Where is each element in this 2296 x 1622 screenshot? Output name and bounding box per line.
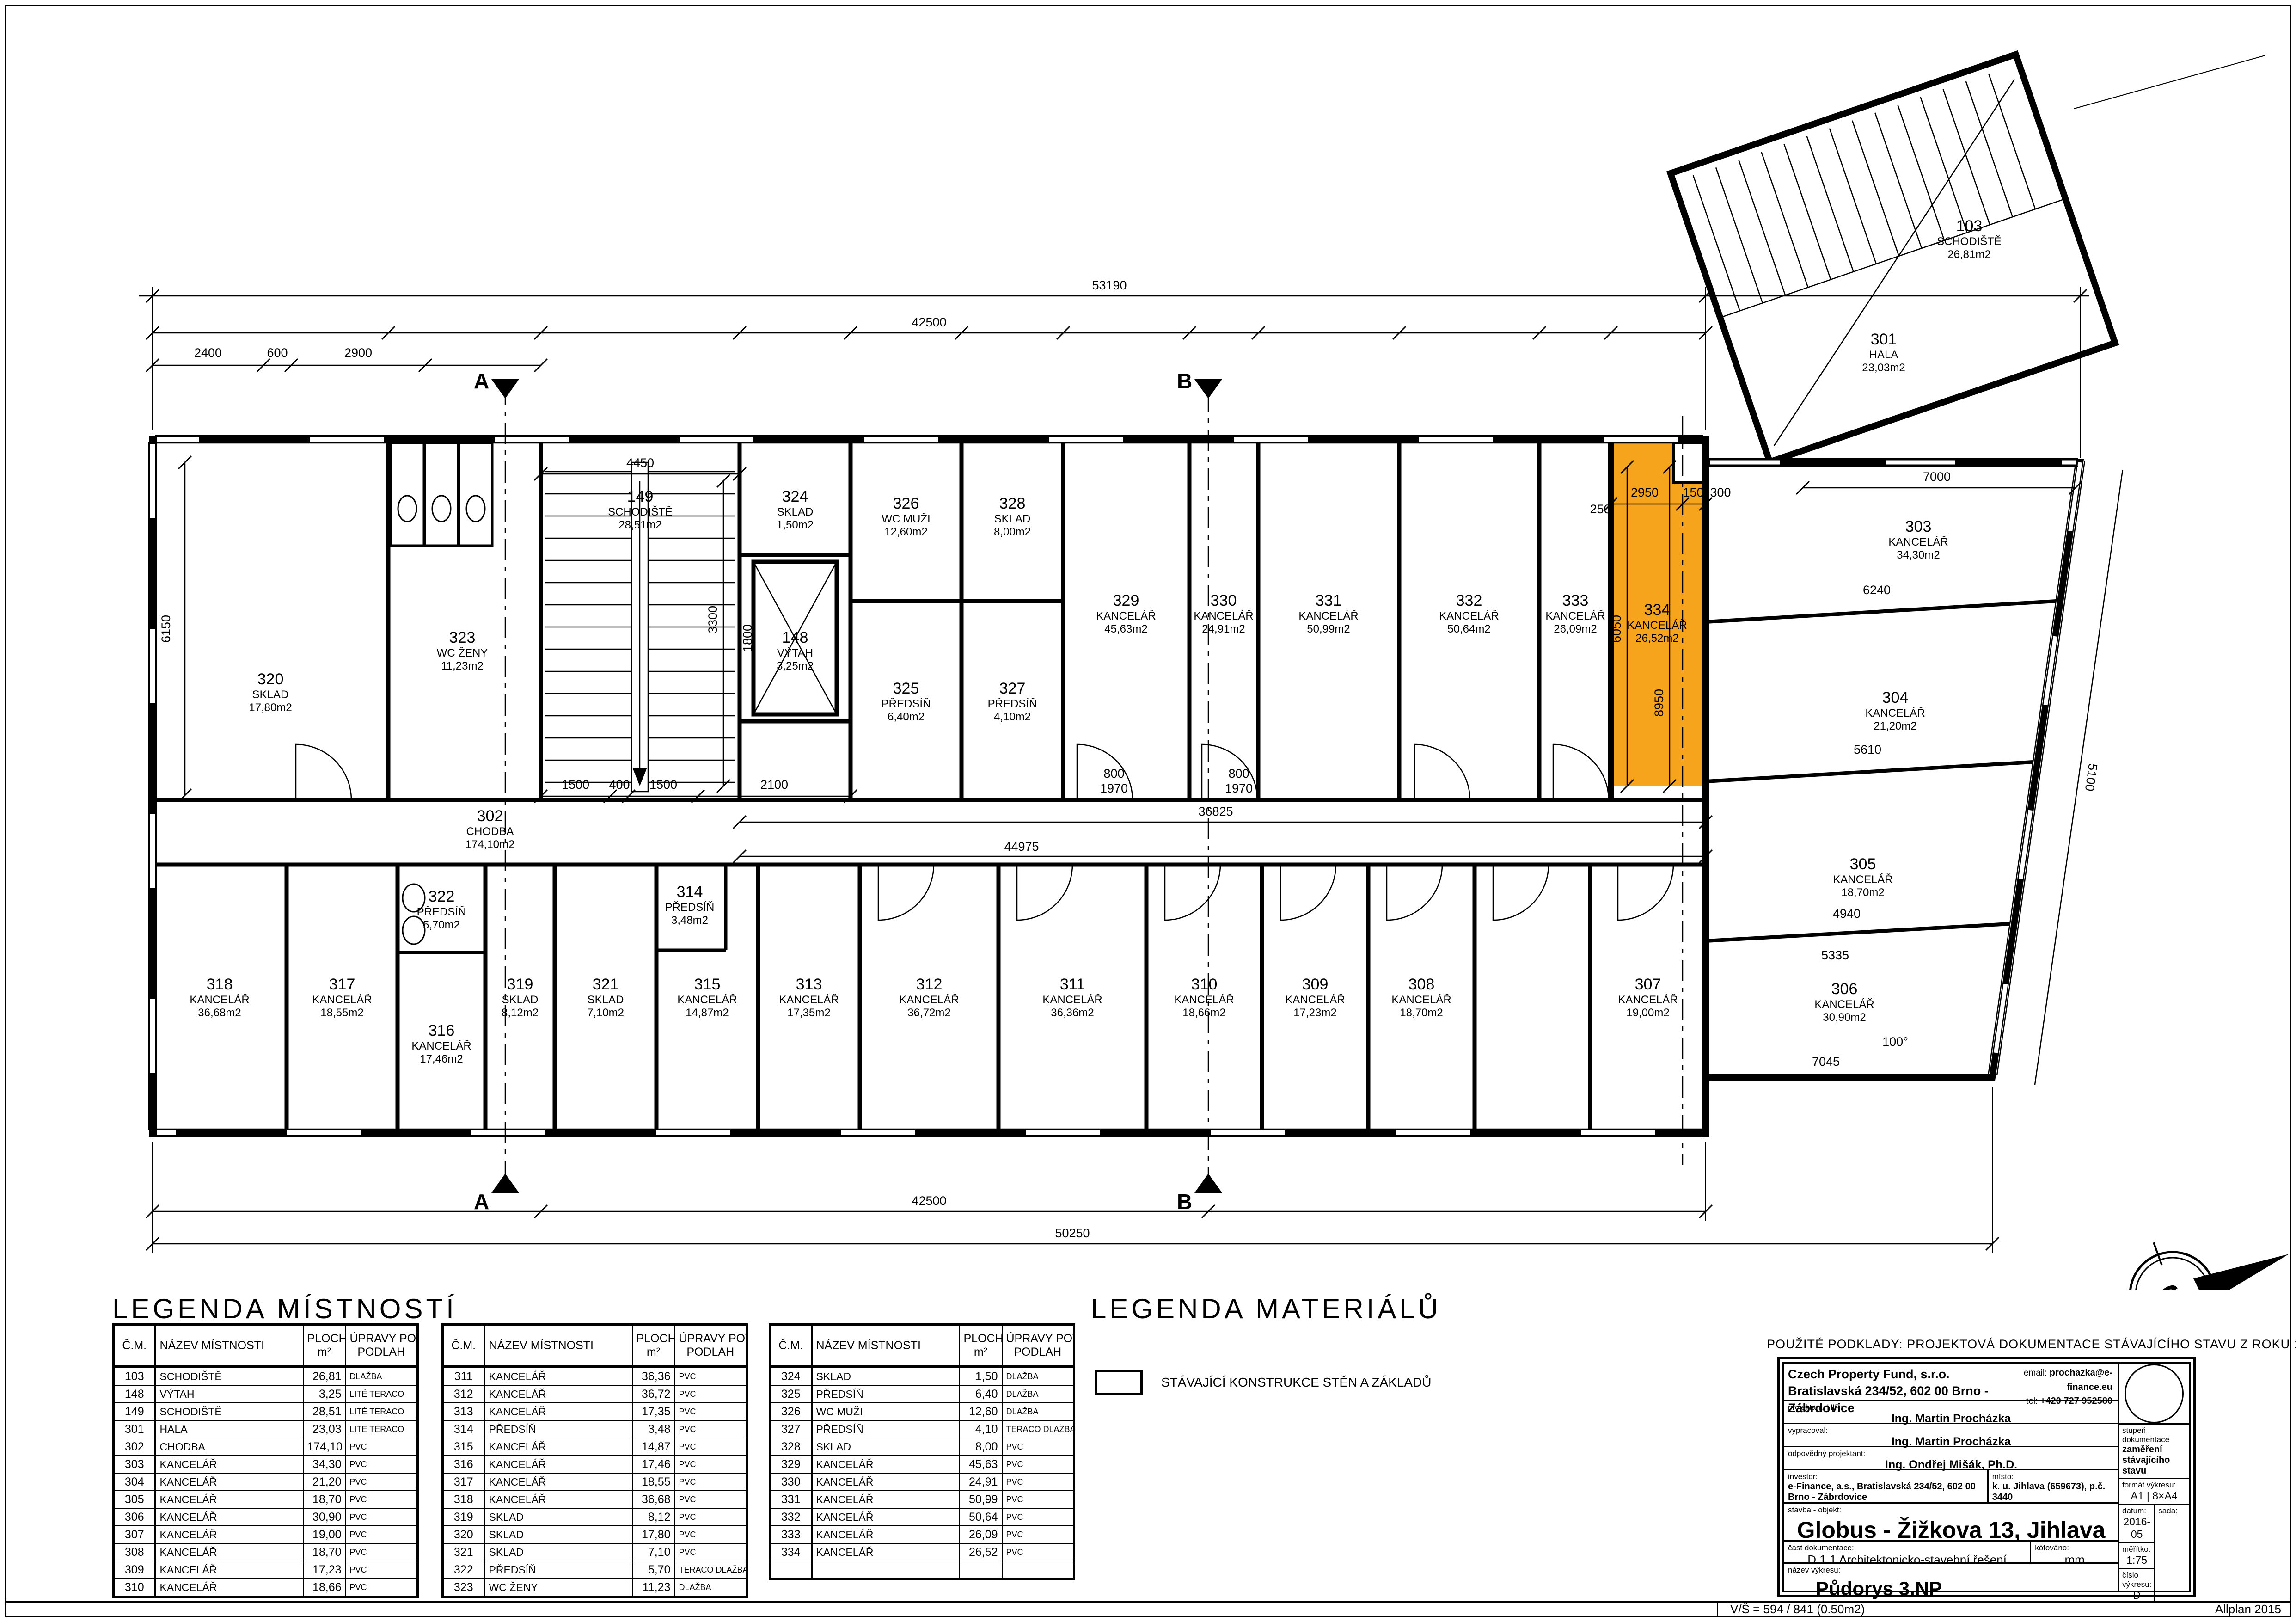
datum-value: 2016-05 xyxy=(2122,1516,2151,1541)
legend-row: 312KANCELÁŘ36,72PVC xyxy=(443,1385,747,1403)
legend-cell: KANCELÁŘ xyxy=(812,1543,960,1561)
cast-row: část dokumentace: D.1.1 Architektonicko-… xyxy=(1784,1542,2118,1564)
legend-row: 332KANCELÁŘ50,64PVC xyxy=(770,1508,1074,1526)
legend-cell: SKLAD xyxy=(484,1543,632,1561)
legend-row: 149SCHODIŠTĚ28,51LITÉ TERACO xyxy=(114,1403,418,1420)
legend-cell: LITÉ TERACO xyxy=(346,1420,418,1438)
legend-cell: 18,70 xyxy=(303,1491,346,1508)
legend-cell: PVC xyxy=(675,1385,747,1403)
legend-cell: 12,60 xyxy=(960,1403,1002,1420)
col-header-name: NÁZEV MÍSTNOSTI xyxy=(812,1325,960,1367)
legend-cell: 322 xyxy=(443,1561,484,1579)
section-lines xyxy=(505,384,1683,1188)
floor-plan: A A B B xyxy=(0,0,2296,1290)
legend-cell: 324 xyxy=(770,1367,812,1385)
legend-cell: 24,91 xyxy=(960,1473,1002,1491)
legend-row xyxy=(770,1561,1074,1579)
dim-label: 800 xyxy=(1103,767,1124,780)
legend-cell: PVC xyxy=(346,1579,418,1597)
legend-cell xyxy=(770,1561,812,1579)
legend-cell: PVC xyxy=(1002,1491,1074,1508)
legend-cell: KANCELÁŘ xyxy=(484,1491,632,1508)
legend-row: 323WC ŽENY11,23DLAŽBA xyxy=(443,1579,747,1597)
legend-row: 333KANCELÁŘ26,09PVC xyxy=(770,1526,1074,1543)
legend-cell: PVC xyxy=(675,1367,747,1385)
dim-label: 400 xyxy=(609,778,630,792)
legend-cell: 315 xyxy=(443,1438,484,1456)
odpovedny-row: odpovědný projektant: Ing. Ondřej Mišák,… xyxy=(1784,1447,2118,1470)
legend-cell: KANCELÁŘ xyxy=(155,1473,303,1491)
room-label: 309KANCELÁŘ17,23m2 xyxy=(1285,976,1345,1019)
legend-cell: PVC xyxy=(1002,1438,1074,1456)
legend-cell: PVC xyxy=(675,1491,747,1508)
dim-label: 1500 xyxy=(562,778,589,792)
stupen-row: stupeň dokumentace zaměření stávajícího … xyxy=(2119,1425,2189,1479)
legend-cell: 50,99 xyxy=(960,1491,1002,1508)
legend-cell: 14,87 xyxy=(632,1438,675,1456)
vypracoval-value: Ing. Martin Procházka xyxy=(1788,1435,2114,1449)
legend-cell: PVC xyxy=(346,1543,418,1561)
room-label: 304KANCELÁŘ21,20m2 xyxy=(1865,689,1925,732)
legend-row: 326WC MUŽI12,60DLAŽBA xyxy=(770,1403,1074,1420)
stamp-area xyxy=(2119,1364,2189,1425)
legend-cell: 313 xyxy=(443,1403,484,1420)
vypracoval-row: vypracoval: Ing. Martin Procházka xyxy=(1784,1424,2118,1447)
room-label: 305KANCELÁŘ18,70m2 xyxy=(1833,855,1892,899)
dim-label: 42500 xyxy=(912,315,946,329)
legend-row: 305KANCELÁŘ18,70PVC xyxy=(114,1491,418,1508)
legend-cell: 328 xyxy=(770,1438,812,1456)
legend-cell: 36,36 xyxy=(632,1367,675,1385)
footer-scale-note: V/Š = 594 / 841 (0.50m2) xyxy=(1718,1602,2215,1616)
legend-cell: 23,03 xyxy=(303,1420,346,1438)
legend-cell xyxy=(812,1561,960,1579)
legend-cell: 330 xyxy=(770,1473,812,1491)
dim-label: 50250 xyxy=(1055,1226,1090,1240)
legend-cell: 26,52 xyxy=(960,1543,1002,1561)
legend-cell: 17,23 xyxy=(303,1561,346,1579)
legend-cell: KANCELÁŘ xyxy=(812,1491,960,1508)
east-wing xyxy=(1706,459,2085,1079)
dim-label: 250 xyxy=(1590,502,1610,516)
legend-cell: 36,68 xyxy=(632,1491,675,1508)
projektant-value: Ing. Martin Procházka xyxy=(1788,1412,2114,1425)
legend-cell: SKLAD xyxy=(484,1508,632,1526)
legend-cell: 333 xyxy=(770,1526,812,1543)
legend-cell: 318 xyxy=(443,1491,484,1508)
odpovedny-value: Ing. Ondřej Mišák, Ph.D. xyxy=(1788,1458,2114,1472)
legend-row: 328SKLAD8,00PVC xyxy=(770,1438,1074,1456)
legend-cell: 1,50 xyxy=(960,1367,1002,1385)
legend-row: 334KANCELÁŘ26,52PVC xyxy=(770,1543,1074,1561)
legend-row: 320SKLAD17,80PVC xyxy=(443,1526,747,1543)
legend-cell: DLAŽBA xyxy=(1002,1403,1074,1420)
room-label: 330KANCELÁŘ24,91m2 xyxy=(1194,592,1253,635)
legend-cell: SCHODIŠTĚ xyxy=(155,1367,303,1385)
email-value: prochazka@e-finance.eu xyxy=(2050,1368,2112,1392)
legend-cell: PŘEDSÍŇ xyxy=(812,1385,960,1403)
legend-cell: 334 xyxy=(770,1543,812,1561)
legend-cell: PVC xyxy=(675,1508,747,1526)
legend-cell: WC MUŽI xyxy=(812,1403,960,1420)
room-label: 316KANCELÁŘ17,46m2 xyxy=(411,1022,471,1065)
legend-cell: PVC xyxy=(346,1561,418,1579)
legend-rooms-table-1: Č.M. NÁZEV MÍSTNOSTI PLOCHAm² ÚPRAVY POV… xyxy=(112,1323,419,1598)
legend-cell: LITÉ TERACO xyxy=(346,1385,418,1403)
legend-cell: SCHODIŠTĚ xyxy=(155,1403,303,1420)
room-label: 325PŘEDSÍŇ6,40m2 xyxy=(882,680,931,723)
dim-label: 6240 xyxy=(1863,583,1891,597)
material-label: STÁVAJÍCÍ KONSTRUKCE STĚN A ZÁKLADŮ xyxy=(1161,1375,1432,1390)
room-label: 301HALA23,03m2 xyxy=(1862,331,1905,374)
legend-cell: 310 xyxy=(114,1579,155,1597)
legend-cell: 311 xyxy=(443,1367,484,1385)
dim-label: 2400 xyxy=(194,346,222,360)
legend-cell: PVC xyxy=(346,1508,418,1526)
room-label: 326WC MUŽI12,60m2 xyxy=(882,495,930,538)
legend-cell: 5,70 xyxy=(632,1561,675,1579)
legend-cell: 36,72 xyxy=(632,1385,675,1403)
legend-cell: KANCELÁŘ xyxy=(812,1508,960,1526)
legend-cell: KANCELÁŘ xyxy=(484,1456,632,1473)
stupen-value: zaměření stávajícího stavu xyxy=(2122,1444,2186,1476)
dim-label: 300 xyxy=(1710,485,1731,499)
col-header-num: Č.M. xyxy=(114,1325,155,1367)
legend-cell: 103 xyxy=(114,1367,155,1385)
section-letter-b-top: B xyxy=(1177,369,1192,393)
room-label: 319SKLAD8,12m2 xyxy=(502,976,539,1019)
investor-value: e-Finance, a.s., Bratislavská 234/52, 60… xyxy=(1788,1481,1984,1503)
legend-row: 325PŘEDSÍŇ6,40DLAŽBA xyxy=(770,1385,1074,1403)
main-building xyxy=(149,436,1706,1137)
room-label: 323WC ŽENY11,23m2 xyxy=(437,629,488,672)
legend-cell: 18,66 xyxy=(303,1579,346,1597)
dim-label: 5335 xyxy=(1821,948,1849,962)
stamp-circle-icon xyxy=(2125,1364,2184,1423)
room-label: 318KANCELÁŘ36,68m2 xyxy=(190,976,249,1019)
misto-value: k. u. Jihlava (659673), p.č. 3440 xyxy=(1992,1481,2114,1503)
legend-cell: PVC xyxy=(675,1456,747,1473)
dim-label: 5100 xyxy=(2082,762,2100,792)
legend-cell: PVC xyxy=(346,1526,418,1543)
section-letter-b-bottom: B xyxy=(1177,1190,1192,1214)
legend-cell: 3,25 xyxy=(303,1385,346,1403)
legend-cell: 323 xyxy=(443,1579,484,1597)
dim-label: 7045 xyxy=(1812,1055,1840,1069)
legend-row: 314PŘEDSÍŇ3,48PVC xyxy=(443,1420,747,1438)
legend-cell: KANCELÁŘ xyxy=(812,1473,960,1491)
legend-cell: KANCELÁŘ xyxy=(155,1508,303,1526)
highlighted-room-notch xyxy=(1673,443,1703,482)
legend-cell: 26,09 xyxy=(960,1526,1002,1543)
dimension-labels: 5319042500425005025036825449756150700062… xyxy=(159,278,2100,1240)
legend-row: 316KANCELÁŘ17,46PVC xyxy=(443,1456,747,1473)
room-label: 302CHODBA174,10m2 xyxy=(465,807,515,851)
legend-cell: PVC xyxy=(1002,1473,1074,1491)
legend-cell: 327 xyxy=(770,1420,812,1438)
room-label: 306KANCELÁŘ30,90m2 xyxy=(1814,980,1874,1024)
dim-label: 7000 xyxy=(1923,470,1951,484)
room-label: 329KANCELÁŘ45,63m2 xyxy=(1096,592,1156,635)
legend-cell: WC ŽENY xyxy=(484,1579,632,1597)
dim-label: 3300 xyxy=(706,606,720,633)
extension-line xyxy=(2074,55,2265,109)
dim-label: 2900 xyxy=(344,346,372,360)
dim-label: 800 xyxy=(1228,767,1249,780)
legend-row: 310KANCELÁŘ18,66PVC xyxy=(114,1579,418,1597)
meritko-row: měřítko: 1:75 xyxy=(2119,1543,2154,1569)
section-letter-a-top: A xyxy=(474,369,489,393)
legend-cell: KANCELÁŘ xyxy=(155,1543,303,1561)
room-label: 324SKLAD1,50m2 xyxy=(777,488,814,531)
legend-cell: KANCELÁŘ xyxy=(155,1526,303,1543)
legend-cell: 331 xyxy=(770,1491,812,1508)
legend-cell xyxy=(960,1561,1002,1579)
legend-cell: 21,20 xyxy=(303,1473,346,1491)
legend-cell: KANCELÁŘ xyxy=(484,1367,632,1385)
legend-cell: PŘEDSÍŇ xyxy=(484,1420,632,1438)
room-label: 148VÝTAH3,25m2 xyxy=(777,629,814,672)
legend-materials-item: STÁVAJÍCÍ KONSTRUKCE STĚN A ZÁKLADŮ xyxy=(1095,1370,1432,1395)
legend-cell: 325 xyxy=(770,1385,812,1403)
legend-cell: 303 xyxy=(114,1456,155,1473)
dim-label: 8950 xyxy=(1652,689,1666,717)
legend-row: 307KANCELÁŘ19,00PVC xyxy=(114,1526,418,1543)
legend-cell: KANCELÁŘ xyxy=(155,1456,303,1473)
legend-cell: KANCELÁŘ xyxy=(155,1579,303,1597)
legend-cell: KANCELÁŘ xyxy=(484,1403,632,1420)
dim-label: 53190 xyxy=(1092,278,1127,292)
room-label: 333KANCELÁŘ26,09m2 xyxy=(1545,592,1605,635)
annex-block xyxy=(1671,55,2115,462)
dim-label: 4940 xyxy=(1833,907,1861,921)
room-label: 307KANCELÁŘ19,00m2 xyxy=(1618,976,1678,1019)
room-label: 320SKLAD17,80m2 xyxy=(249,670,292,714)
legend-row: 321SKLAD7,10PVC xyxy=(443,1543,747,1561)
legend-rooms-table-2: Č.M. NÁZEV MÍSTNOSTI PLOCHAm² ÚPRAVY POV… xyxy=(441,1323,748,1598)
legend-row: 324SKLAD1,50DLAŽBA xyxy=(770,1367,1074,1385)
legend-cell: PVC xyxy=(1002,1526,1074,1543)
legend-rooms-title: LEGENDA MÍSTNOSTÍ xyxy=(112,1293,457,1325)
legend-cell: 17,35 xyxy=(632,1403,675,1420)
col-header-floor: ÚPRAVY POVRCHŮPODLAH xyxy=(346,1325,418,1367)
legend-cell: DLAŽBA xyxy=(346,1367,418,1385)
investor-row: investor: e-Finance, a.s., Bratislavská … xyxy=(1784,1470,2118,1504)
legend-cell: KANCELÁŘ xyxy=(812,1456,960,1473)
wc-stalls xyxy=(391,443,492,944)
legend-row: 148VÝTAH3,25LITÉ TERACO xyxy=(114,1385,418,1403)
room-label: 310KANCELÁŘ18,66m2 xyxy=(1174,976,1234,1019)
legend-cell: DLAŽBA xyxy=(675,1579,747,1597)
dim-label: 4450 xyxy=(626,456,654,470)
room-label: 327PŘEDSÍŇ4,10m2 xyxy=(988,680,1037,723)
legend-cell: 309 xyxy=(114,1561,155,1579)
legend-cell: 308 xyxy=(114,1543,155,1561)
legend-cell: 45,63 xyxy=(960,1456,1002,1473)
legend-row: 302CHODBA174,10PVC xyxy=(114,1438,418,1456)
col-header-num: Č.M. xyxy=(770,1325,812,1367)
email-label: email: xyxy=(2024,1368,2047,1378)
legend-cell: KANCELÁŘ xyxy=(155,1491,303,1508)
legend-cell: PŘEDSÍŇ xyxy=(812,1420,960,1438)
legend-row: 331KANCELÁŘ50,99PVC xyxy=(770,1491,1074,1508)
legend-cell: 312 xyxy=(443,1385,484,1403)
legend-cell: PVC xyxy=(675,1473,747,1491)
legend-row: 304KANCELÁŘ21,20PVC xyxy=(114,1473,418,1491)
dim-label: 2950 xyxy=(1631,485,1659,499)
col-header-name: NÁZEV MÍSTNOSTI xyxy=(155,1325,303,1367)
legend-cell: 3,48 xyxy=(632,1420,675,1438)
company-row: Czech Property Fund, s.r.o. Bratislavská… xyxy=(1784,1364,2118,1401)
legend-cell: 8,00 xyxy=(960,1438,1002,1456)
legend-cell: KANCELÁŘ xyxy=(155,1561,303,1579)
dimension-lines xyxy=(139,287,2123,1253)
room-label: 311KANCELÁŘ36,36m2 xyxy=(1042,976,1102,1019)
north-compass-icon: S xyxy=(2130,1242,2289,1290)
footer-bar: V/Š = 594 / 841 (0.50m2) Allplan 2015 xyxy=(5,1601,2291,1617)
meritko-value: 1:75 xyxy=(2122,1554,2151,1567)
legend-cell: 148 xyxy=(114,1385,155,1403)
legend-cell: 307 xyxy=(114,1526,155,1543)
legend-cell: 17,46 xyxy=(632,1456,675,1473)
dim-label: 600 xyxy=(267,346,288,360)
legend-cell: HALA xyxy=(155,1420,303,1438)
dim-label: 1800 xyxy=(741,624,754,652)
nazev-row: název výkresu: Půdorys 3.NP xyxy=(1784,1564,2118,1602)
legend-cell: SKLAD xyxy=(812,1438,960,1456)
legend-cell: 301 xyxy=(114,1420,155,1438)
company-name: Czech Property Fund, s.r.o. xyxy=(1788,1366,2005,1382)
legend-cell: KANCELÁŘ xyxy=(484,1438,632,1456)
legend-cell: KANCELÁŘ xyxy=(812,1526,960,1543)
footer-left-segment xyxy=(6,1603,1718,1616)
room-label: 314PŘEDSÍŇ3,48m2 xyxy=(665,883,715,927)
legend-row: 303KANCELÁŘ34,30PVC xyxy=(114,1456,418,1473)
legend-cell: LITÉ TERACO xyxy=(346,1403,418,1420)
legend-cell: PVC xyxy=(675,1526,747,1543)
legend-cell: TERACO DLAŽBA xyxy=(675,1561,747,1579)
legend-cell: 50,64 xyxy=(960,1508,1002,1526)
legend-cell: 317 xyxy=(443,1473,484,1491)
legend-cell: 18,70 xyxy=(303,1543,346,1561)
legend-cell: 30,90 xyxy=(303,1508,346,1526)
legend-cell: PVC xyxy=(346,1438,418,1456)
legend-cell: 304 xyxy=(114,1473,155,1491)
legend-cell: PVC xyxy=(675,1403,747,1420)
legend-cell: 326 xyxy=(770,1403,812,1420)
legend-cell: 26,81 xyxy=(303,1367,346,1385)
legend-row: 329KANCELÁŘ45,63PVC xyxy=(770,1456,1074,1473)
legend-row: 301HALA23,03LITÉ TERACO xyxy=(114,1420,418,1438)
room-label: 328SKLAD8,00m2 xyxy=(994,495,1031,538)
legend-cell: PVC xyxy=(346,1456,418,1473)
drawing-sheet: A A B B xyxy=(0,0,2296,1622)
legend-cell: PVC xyxy=(675,1543,747,1561)
col-header-num: Č.M. xyxy=(443,1325,484,1367)
format-row: formát výkresu: A1 | 8×A4 xyxy=(2119,1479,2189,1505)
dim-label: 100° xyxy=(1882,1035,1908,1049)
legend-cell: 332 xyxy=(770,1508,812,1526)
partitions-north xyxy=(388,443,1539,800)
stavba-row: stavba - objekt: Globus - Žižkova 13, Ji… xyxy=(1784,1504,2118,1542)
stavba-value: Globus - Žižkova 13, Jihlava xyxy=(1788,1517,2114,1543)
legend-row: 315KANCELÁŘ14,87PVC xyxy=(443,1438,747,1456)
legend-cell: CHODBA xyxy=(155,1438,303,1456)
legend-row: 313KANCELÁŘ17,35PVC xyxy=(443,1403,747,1420)
legend-cell: KANCELÁŘ xyxy=(484,1385,632,1403)
legend-cell: 320 xyxy=(443,1526,484,1543)
dim-label: 2100 xyxy=(760,778,788,792)
legend-cell: PVC xyxy=(1002,1456,1074,1473)
legend-cell: KANCELÁŘ xyxy=(484,1473,632,1491)
legend-cell: PŘEDSÍŇ xyxy=(484,1561,632,1579)
legend-row: 308KANCELÁŘ18,70PVC xyxy=(114,1543,418,1561)
legend-cell: SKLAD xyxy=(484,1526,632,1543)
legend-row: 319SKLAD8,12PVC xyxy=(443,1508,747,1526)
legend-cell: 28,51 xyxy=(303,1403,346,1420)
nazev-value: Půdorys 3.NP xyxy=(1816,1578,2114,1600)
legend-cell: 4,10 xyxy=(960,1420,1002,1438)
legend-cell: DLAŽBA xyxy=(1002,1385,1074,1403)
dim-label: 36825 xyxy=(1198,805,1233,818)
col-header-name: NÁZEV MÍSTNOSTI xyxy=(484,1325,632,1367)
legend-row: 309KANCELÁŘ17,23PVC xyxy=(114,1561,418,1579)
dim-label: 1970 xyxy=(1100,781,1128,795)
legend-cell: PVC xyxy=(1002,1543,1074,1561)
material-swatch xyxy=(1095,1370,1143,1395)
col-header-floor: ÚPRAVY POVRCHŮPODLAH xyxy=(1002,1325,1074,1367)
legend-cell: PVC xyxy=(675,1420,747,1438)
legend-cell: 314 xyxy=(443,1420,484,1438)
legend-cell: 11,23 xyxy=(632,1579,675,1597)
dim-label: 6150 xyxy=(159,615,173,643)
legend-cell: 316 xyxy=(443,1456,484,1473)
legend-cell: PVC xyxy=(675,1438,747,1456)
legend-row: 322PŘEDSÍŇ5,70TERACO DLAŽBA xyxy=(443,1561,747,1579)
room-label: 308KANCELÁŘ18,70m2 xyxy=(1391,976,1451,1019)
legend-row: 318KANCELÁŘ36,68PVC xyxy=(443,1491,747,1508)
room-label: 332KANCELÁŘ50,64m2 xyxy=(1439,592,1499,635)
legend-row: 330KANCELÁŘ24,91PVC xyxy=(770,1473,1074,1491)
legend-cell: 7,10 xyxy=(632,1543,675,1561)
legend-cell: 8,12 xyxy=(632,1508,675,1526)
legend-cell: 302 xyxy=(114,1438,155,1456)
format-value: A1 | 8×A4 xyxy=(2122,1490,2186,1502)
legend-cell: PVC xyxy=(346,1491,418,1508)
legend-row: 306KANCELÁŘ30,90PVC xyxy=(114,1508,418,1526)
col-header-area: PLOCHAm² xyxy=(632,1325,675,1367)
room-label: 321SKLAD7,10m2 xyxy=(587,976,624,1019)
legend-row: 317KANCELÁŘ18,55PVC xyxy=(443,1473,747,1491)
title-block: Czech Property Fund, s.r.o. Bratislavská… xyxy=(1777,1357,2196,1597)
projektant-row: projektant, HIP: Ing. Martin Procházka xyxy=(1784,1401,2118,1424)
section-letter-a-bottom: A xyxy=(474,1190,489,1214)
legend-cell: 305 xyxy=(114,1491,155,1508)
legend-cell: 174,10 xyxy=(303,1438,346,1456)
legend-cell: 6,40 xyxy=(960,1385,1002,1403)
dim-label: 44975 xyxy=(1004,840,1039,854)
legend-cell: 18,55 xyxy=(632,1473,675,1491)
col-header-area: PLOCHAm² xyxy=(303,1325,346,1367)
legend-cell: 329 xyxy=(770,1456,812,1473)
legend-cell: SKLAD xyxy=(812,1367,960,1385)
col-header-area: PLOCHAm² xyxy=(960,1325,1002,1367)
dim-label: 5610 xyxy=(1854,743,1881,756)
dim-label: 150 xyxy=(1683,485,1703,499)
legend-cell xyxy=(1002,1561,1074,1579)
corridor-walls xyxy=(157,800,1706,865)
legend-cell: 34,30 xyxy=(303,1456,346,1473)
